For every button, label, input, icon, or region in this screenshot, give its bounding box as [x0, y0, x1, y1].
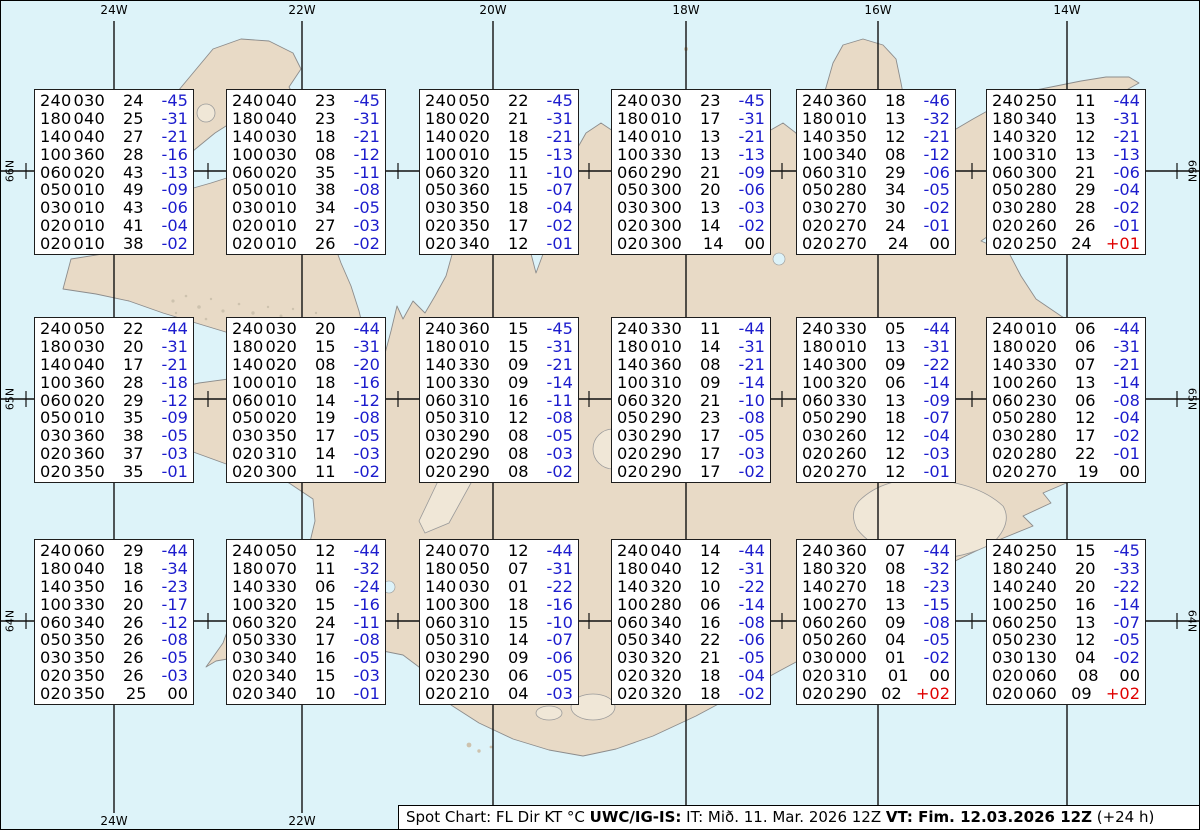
- temperature-c: 00: [929, 667, 950, 685]
- wind-speed-kt: 02: [881, 685, 902, 703]
- wind-speed-kt: 16: [508, 392, 529, 410]
- longitude-label-top: 18W: [672, 4, 699, 16]
- temperature-c: -45: [1114, 542, 1140, 560]
- flight-level-row: 10026013-14: [992, 374, 1140, 392]
- flight-level-row: 03035026-05: [40, 649, 188, 667]
- temperature-c: -44: [924, 542, 950, 560]
- fl-and-wind-direction: 050280: [992, 181, 1057, 199]
- flight-level-row: 10034008-12: [802, 146, 950, 164]
- wind-speed-kt: 26: [1075, 217, 1096, 235]
- wind-speed-kt: 14: [508, 631, 529, 649]
- fl-and-wind-direction: 060020: [40, 392, 105, 410]
- wind-speed-kt: 13: [700, 128, 721, 146]
- fl-and-wind-direction: 050310: [425, 409, 490, 427]
- spot-data-box-r1c6: 24025011-4418034013-3114032012-211003101…: [986, 89, 1146, 255]
- wind-speed-kt: 06: [315, 578, 336, 596]
- fl-and-wind-direction: 020320: [617, 667, 682, 685]
- fl-and-wind-direction: 180010: [617, 338, 682, 356]
- fl-and-wind-direction: 050020: [232, 409, 297, 427]
- wind-speed-kt: 19: [315, 409, 336, 427]
- fl-and-wind-direction: 100340: [802, 146, 867, 164]
- fl-and-wind-direction: 020010: [40, 235, 105, 253]
- iceland-landmass: [63, 39, 1139, 756]
- wind-speed-kt: 26: [315, 235, 336, 253]
- fl-and-wind-direction: 180020: [992, 338, 1057, 356]
- fl-and-wind-direction: 100280: [617, 596, 682, 614]
- flight-level-row: 06034026-12: [40, 614, 188, 632]
- fl-and-wind-direction: 100030: [232, 146, 297, 164]
- wind-speed-kt: 04: [1075, 649, 1096, 667]
- temperature-c: -02: [924, 199, 950, 217]
- temperature-c: -14: [739, 374, 765, 392]
- wind-speed-kt: 13: [700, 146, 721, 164]
- spot-data-box-r3c3: 24007012-4418005007-3114003001-221003001…: [419, 539, 579, 705]
- fl-and-wind-direction: 140350: [40, 578, 105, 596]
- fl-and-wind-direction: 240040: [232, 92, 297, 110]
- flight-level-row: 02029002+02: [802, 685, 950, 703]
- temperature-c: -01: [1114, 445, 1140, 463]
- fl-and-wind-direction: 140300: [802, 356, 867, 374]
- flight-level-row: 05001038-08: [232, 181, 380, 199]
- flight-level-row: 05036015-07: [425, 181, 573, 199]
- wind-speed-kt: 11: [508, 164, 529, 182]
- flight-level-row: 06031029-06: [802, 164, 950, 182]
- temperature-c: -12: [162, 614, 188, 632]
- flight-level-row: 02034012-01: [425, 235, 573, 253]
- flight-level-row: 05030020-06: [617, 181, 765, 199]
- fl-and-wind-direction: 020260: [992, 217, 1057, 235]
- fl-and-wind-direction: 240030: [40, 92, 105, 110]
- flight-level-row: 06031016-11: [425, 392, 573, 410]
- temperature-c: -45: [547, 92, 573, 110]
- temperature-c: -22: [547, 578, 573, 596]
- flight-level-row: 05001035-09: [40, 409, 188, 427]
- flight-level-row: 10028006-14: [617, 596, 765, 614]
- flight-level-row: 10033020-17: [40, 596, 188, 614]
- fl-and-wind-direction: 020340: [232, 685, 297, 703]
- wind-speed-kt: 17: [508, 217, 529, 235]
- flight-level-row: 02032018-04: [617, 667, 765, 685]
- flight-level-row: 24004014-44: [617, 542, 765, 560]
- temperature-c: -06: [547, 649, 573, 667]
- valid-time-label: VT: Fim. 12.03.2026 12Z: [886, 808, 1092, 826]
- temperature-c: -03: [162, 445, 188, 463]
- fl-and-wind-direction: 140350: [802, 128, 867, 146]
- wind-speed-kt: 35: [123, 409, 144, 427]
- wind-speed-kt: 01: [885, 649, 906, 667]
- issue-time-label: IT: Mið. 11. Mar. 2026 12Z: [681, 808, 886, 826]
- temperature-c: -02: [1114, 649, 1140, 667]
- flight-level-row: 24036015-45: [425, 320, 573, 338]
- latitude-label-left: 66N: [5, 160, 16, 182]
- temperature-c: -44: [1114, 92, 1140, 110]
- wind-speed-kt: 23: [315, 110, 336, 128]
- temperature-c: -09: [924, 392, 950, 410]
- fl-and-wind-direction: 020290: [617, 463, 682, 481]
- wind-speed-kt: 08: [508, 445, 529, 463]
- wind-speed-kt: 35: [123, 463, 144, 481]
- temperature-c: -31: [739, 338, 765, 356]
- flight-level-row: 18001017-31: [617, 110, 765, 128]
- temperature-c: -31: [354, 338, 380, 356]
- wind-speed-kt: 06: [1075, 338, 1096, 356]
- temperature-c: -44: [354, 542, 380, 560]
- flight-level-row: 18005007-31: [425, 560, 573, 578]
- wind-speed-kt: 04: [508, 685, 529, 703]
- latitude-label-right: 64N: [1187, 610, 1198, 632]
- wind-speed-kt: 18: [315, 374, 336, 392]
- flight-level-row: 10032015-16: [232, 596, 380, 614]
- flight-level-row: 02032018-02: [617, 685, 765, 703]
- wind-speed-kt: 18: [508, 128, 529, 146]
- wind-speed-kt: 21: [508, 110, 529, 128]
- wind-speed-kt: 14: [700, 217, 721, 235]
- temperature-c: -13: [547, 146, 573, 164]
- fl-and-wind-direction: 100300: [425, 596, 490, 614]
- spot-data-box-r1c1: 24003024-4518004025-3114004027-211003602…: [34, 89, 194, 255]
- fl-and-wind-direction: 020270: [802, 463, 867, 481]
- flight-level-row: 02035017-02: [425, 217, 573, 235]
- flight-level-row: 03034016-05: [232, 649, 380, 667]
- flight-level-row: 24033005-44: [802, 320, 950, 338]
- flight-level-row: 05001049-09: [40, 181, 188, 199]
- wind-speed-kt: 18: [508, 596, 529, 614]
- temperature-c: -14: [739, 596, 765, 614]
- flight-level-row: 06032011-10: [425, 164, 573, 182]
- flight-level-row: 06032021-10: [617, 392, 765, 410]
- temperature-c: -13: [739, 146, 765, 164]
- temperature-c: -02: [739, 217, 765, 235]
- fl-and-wind-direction: 020230: [425, 667, 490, 685]
- flight-level-row: 14032012-21: [992, 128, 1140, 146]
- wind-speed-kt: 24: [123, 92, 144, 110]
- fl-and-wind-direction: 060300: [992, 164, 1057, 182]
- flight-level-row: 24025015-45: [992, 542, 1140, 560]
- flight-level-row: 10033013-13: [617, 146, 765, 164]
- wind-speed-kt: 26: [123, 667, 144, 685]
- temperature-c: -10: [547, 614, 573, 632]
- temperature-c: -03: [547, 685, 573, 703]
- fl-and-wind-direction: 100260: [992, 374, 1057, 392]
- temperature-c: -08: [354, 631, 380, 649]
- fl-and-wind-direction: 050010: [232, 181, 297, 199]
- flight-level-row: 06002029-12: [40, 392, 188, 410]
- flight-level-row: 03026012-04: [802, 427, 950, 445]
- wind-speed-kt: 38: [123, 427, 144, 445]
- wind-speed-kt: 09: [885, 614, 906, 632]
- wind-speed-kt: 43: [123, 199, 144, 217]
- wind-speed-kt: 24: [315, 614, 336, 632]
- wind-speed-kt: 06: [1075, 320, 1096, 338]
- temperature-c: -08: [162, 631, 188, 649]
- temperature-c: -11: [354, 614, 380, 632]
- temperature-c: -08: [354, 181, 380, 199]
- flight-level-row: 05033017-08: [232, 631, 380, 649]
- flight-level-row: 02034010-01: [232, 685, 380, 703]
- fl-and-wind-direction: 240010: [992, 320, 1057, 338]
- fl-and-wind-direction: 020310: [232, 445, 297, 463]
- temperature-c: -03: [547, 445, 573, 463]
- flight-level-row: 03035017-05: [232, 427, 380, 445]
- flight-level-row: 0203001400: [617, 235, 765, 253]
- temperature-c: -05: [739, 427, 765, 445]
- chart-type-label: Spot Chart: FL Dir KT °C: [406, 808, 590, 826]
- temperature-c: -44: [924, 320, 950, 338]
- wind-speed-kt: 14: [703, 235, 724, 253]
- fl-and-wind-direction: 240360: [425, 320, 490, 338]
- flight-level-row: 10033009-14: [425, 374, 573, 392]
- wind-speed-kt: 13: [1075, 110, 1096, 128]
- fl-and-wind-direction: 060310: [802, 164, 867, 182]
- temperature-c: -21: [162, 356, 188, 374]
- flight-level-row: 14003018-21: [232, 128, 380, 146]
- flight-level-row: 02025024+01: [992, 235, 1140, 253]
- wind-speed-kt: 09: [508, 356, 529, 374]
- flight-level-row: 14002008-20: [232, 356, 380, 374]
- fl-and-wind-direction: 140020: [425, 128, 490, 146]
- fl-and-wind-direction: 240360: [802, 92, 867, 110]
- wind-speed-kt: 17: [700, 110, 721, 128]
- fl-and-wind-direction: 140030: [232, 128, 297, 146]
- temperature-c: -05: [1114, 631, 1140, 649]
- temperature-c: -24: [354, 578, 380, 596]
- wind-speed-kt: 20: [123, 596, 144, 614]
- longitude-label-top: 24W: [100, 4, 127, 16]
- fl-and-wind-direction: 180240: [992, 560, 1057, 578]
- fl-and-wind-direction: 060250: [992, 614, 1057, 632]
- wind-speed-kt: 22: [1075, 445, 1096, 463]
- temperature-c: -22: [739, 578, 765, 596]
- fl-and-wind-direction: 240050: [40, 320, 105, 338]
- wind-speed-kt: 20: [1075, 578, 1096, 596]
- flight-level-row: 05023012-05: [992, 631, 1140, 649]
- flight-level-row: 14004027-21: [40, 128, 188, 146]
- wind-speed-kt: 13: [700, 199, 721, 217]
- temperature-c: -22: [1114, 578, 1140, 596]
- temperature-c: -01: [354, 685, 380, 703]
- wind-speed-kt: 29: [123, 542, 144, 560]
- fl-and-wind-direction: 100360: [40, 374, 105, 392]
- fl-and-wind-direction: 020260: [802, 445, 867, 463]
- wind-speed-kt: 14: [700, 542, 721, 560]
- wind-speed-kt: 20: [1075, 560, 1096, 578]
- flight-level-row: 24003020-44: [232, 320, 380, 338]
- fl-and-wind-direction: 020250: [992, 235, 1057, 253]
- wind-speed-kt: 18: [315, 128, 336, 146]
- wind-speed-kt: 12: [508, 235, 529, 253]
- flight-level-row: 18001014-31: [617, 338, 765, 356]
- fl-and-wind-direction: 140330: [232, 578, 297, 596]
- fl-and-wind-direction: 180020: [425, 110, 490, 128]
- flight-level-row: 06031015-10: [425, 614, 573, 632]
- temperature-c: -03: [354, 445, 380, 463]
- flight-level-row: 24004023-45: [232, 92, 380, 110]
- fl-and-wind-direction: 030290: [425, 649, 490, 667]
- fl-and-wind-direction: 060320: [617, 392, 682, 410]
- temperature-c: -12: [162, 392, 188, 410]
- longitude-label-top: 16W: [864, 4, 891, 16]
- flight-level-row: 05035026-08: [40, 631, 188, 649]
- temperature-c: -05: [547, 667, 573, 685]
- temperature-c: -09: [739, 164, 765, 182]
- temperature-c: -31: [547, 338, 573, 356]
- fl-and-wind-direction: 020320: [617, 685, 682, 703]
- fl-and-wind-direction: 050010: [40, 181, 105, 199]
- temperature-c: -13: [1114, 146, 1140, 164]
- wind-speed-kt: 24: [885, 217, 906, 235]
- wind-speed-kt: 43: [123, 164, 144, 182]
- wind-speed-kt: 08: [700, 356, 721, 374]
- flight-level-row: 14032010-22: [617, 578, 765, 596]
- temperature-c: -21: [354, 128, 380, 146]
- fl-and-wind-direction: 140320: [617, 578, 682, 596]
- fl-and-wind-direction: 050290: [617, 409, 682, 427]
- flight-level-row: 18024020-33: [992, 560, 1140, 578]
- fl-and-wind-direction: 180010: [802, 338, 867, 356]
- fl-and-wind-direction: 180010: [802, 110, 867, 128]
- temperature-c: -08: [924, 614, 950, 632]
- fl-and-wind-direction: 100310: [617, 374, 682, 392]
- temperature-c: -34: [162, 560, 188, 578]
- wind-speed-kt: 11: [700, 320, 721, 338]
- temperature-c: -44: [1114, 320, 1140, 338]
- temperature-c: -12: [354, 392, 380, 410]
- temperature-c: -20: [354, 356, 380, 374]
- temperature-c: -07: [1114, 614, 1140, 632]
- fl-and-wind-direction: 060010: [232, 392, 297, 410]
- temperature-c: -07: [547, 181, 573, 199]
- fl-and-wind-direction: 180340: [992, 110, 1057, 128]
- fl-and-wind-direction: 140020: [232, 356, 297, 374]
- temperature-c: -31: [1114, 338, 1140, 356]
- wind-speed-kt: 17: [315, 631, 336, 649]
- wind-speed-kt: 08: [315, 356, 336, 374]
- temperature-c: -13: [162, 164, 188, 182]
- spot-data-box-r1c4: 24003023-4518001017-3114001013-211003301…: [611, 89, 771, 255]
- temperature-c: 00: [167, 685, 188, 703]
- fl-and-wind-direction: 020290: [802, 685, 867, 703]
- wind-speed-kt: 24: [1071, 235, 1092, 253]
- wind-speed-kt: 15: [1075, 542, 1096, 560]
- temperature-c: -08: [739, 409, 765, 427]
- flight-level-row: 02029017-02: [617, 463, 765, 481]
- temperature-c: -31: [162, 110, 188, 128]
- wind-speed-kt: 16: [315, 649, 336, 667]
- flight-level-row: 24005022-44: [40, 320, 188, 338]
- temperature-c: -05: [924, 631, 950, 649]
- flight-level-row: 14001013-21: [617, 128, 765, 146]
- wind-speed-kt: 34: [885, 181, 906, 199]
- flight-level-row: 05031012-08: [425, 409, 573, 427]
- flight-level-row: 06002035-11: [232, 164, 380, 182]
- latitude-label-right: 66N: [1187, 160, 1198, 182]
- wind-speed-kt: 07: [885, 542, 906, 560]
- longitude-label-top: 20W: [479, 4, 506, 16]
- temperature-c: -16: [162, 146, 188, 164]
- wind-speed-kt: 29: [885, 164, 906, 182]
- flight-level-row: 14033006-24: [232, 578, 380, 596]
- temperature-c: -44: [739, 542, 765, 560]
- temperature-c: -16: [547, 596, 573, 614]
- fl-and-wind-direction: 240050: [232, 542, 297, 560]
- flight-level-row: 24033011-44: [617, 320, 765, 338]
- flight-level-row: 02029008-02: [425, 463, 573, 481]
- fl-and-wind-direction: 050230: [992, 631, 1057, 649]
- wind-speed-kt: 18: [700, 667, 721, 685]
- wind-speed-kt: 07: [1075, 356, 1096, 374]
- wind-speed-kt: 22: [508, 92, 529, 110]
- wind-speed-kt: 21: [700, 164, 721, 182]
- fl-and-wind-direction: 060320: [232, 614, 297, 632]
- flight-level-row: 18004012-31: [617, 560, 765, 578]
- spot-data-box-r2c5: 24033005-4418001013-3114030009-221003200…: [796, 317, 956, 483]
- wind-speed-kt: 12: [315, 542, 336, 560]
- temperature-c: -01: [924, 463, 950, 481]
- temperature-c: -02: [354, 463, 380, 481]
- fl-and-wind-direction: 060020: [232, 164, 297, 182]
- fl-and-wind-direction: 140330: [992, 356, 1057, 374]
- flight-level-row: 14027018-23: [802, 578, 950, 596]
- wind-speed-kt: 11: [315, 560, 336, 578]
- wind-speed-kt: 11: [315, 463, 336, 481]
- flight-level-row: 02026026-01: [992, 217, 1140, 235]
- wind-speed-kt: 18: [885, 92, 906, 110]
- wind-speed-kt: 17: [700, 463, 721, 481]
- fl-and-wind-direction: 050310: [425, 631, 490, 649]
- fl-and-wind-direction: 240330: [802, 320, 867, 338]
- temperature-c: -45: [162, 92, 188, 110]
- spot-data-box-r1c2: 24004023-4518004023-3114003018-211000300…: [226, 89, 386, 255]
- flight-level-row: 05028034-05: [802, 181, 950, 199]
- spot-data-box-r2c1: 24005022-4418003020-3114004017-211003602…: [34, 317, 194, 483]
- temperature-c: -21: [1114, 128, 1140, 146]
- temperature-c: -21: [162, 128, 188, 146]
- wind-speed-kt: 06: [885, 374, 906, 392]
- wind-speed-kt: 24: [888, 235, 909, 253]
- flight-level-row: 02027012-01: [802, 463, 950, 481]
- fl-and-wind-direction: 140040: [40, 128, 105, 146]
- flight-level-row: 02034015-03: [232, 667, 380, 685]
- flight-level-row: 03013004-02: [992, 649, 1140, 667]
- fl-and-wind-direction: 240330: [617, 320, 682, 338]
- fl-and-wind-direction: 240040: [617, 542, 682, 560]
- wind-speed-kt: 15: [315, 338, 336, 356]
- spot-data-box-r3c5: 24036007-4418032008-3214027018-231002701…: [796, 539, 956, 705]
- fl-and-wind-direction: 030270: [802, 199, 867, 217]
- wind-speed-kt: 18: [123, 560, 144, 578]
- temperature-c: -31: [354, 110, 380, 128]
- fl-and-wind-direction: 020350: [425, 217, 490, 235]
- fl-and-wind-direction: 020270: [992, 463, 1057, 481]
- flight-level-row: 05029018-07: [802, 409, 950, 427]
- fl-and-wind-direction: 030260: [802, 427, 867, 445]
- fl-and-wind-direction: 050280: [992, 409, 1057, 427]
- flight-level-row: 18002015-31: [232, 338, 380, 356]
- fl-and-wind-direction: 020350: [40, 685, 105, 703]
- flight-level-row: 02006009+02: [992, 685, 1140, 703]
- temperature-c: -14: [1114, 596, 1140, 614]
- fl-and-wind-direction: 100320: [232, 596, 297, 614]
- temperature-c: -01: [924, 217, 950, 235]
- fl-and-wind-direction: 180010: [425, 338, 490, 356]
- flight-level-row: 0202701900: [992, 463, 1140, 481]
- flight-level-row: 10030018-16: [425, 596, 573, 614]
- fl-and-wind-direction: 240060: [40, 542, 105, 560]
- flight-level-row: 14003001-22: [425, 578, 573, 596]
- fl-and-wind-direction: 060020: [40, 164, 105, 182]
- temperature-c: -31: [1114, 110, 1140, 128]
- product-id-label: UWC/IG-IS:: [590, 808, 682, 826]
